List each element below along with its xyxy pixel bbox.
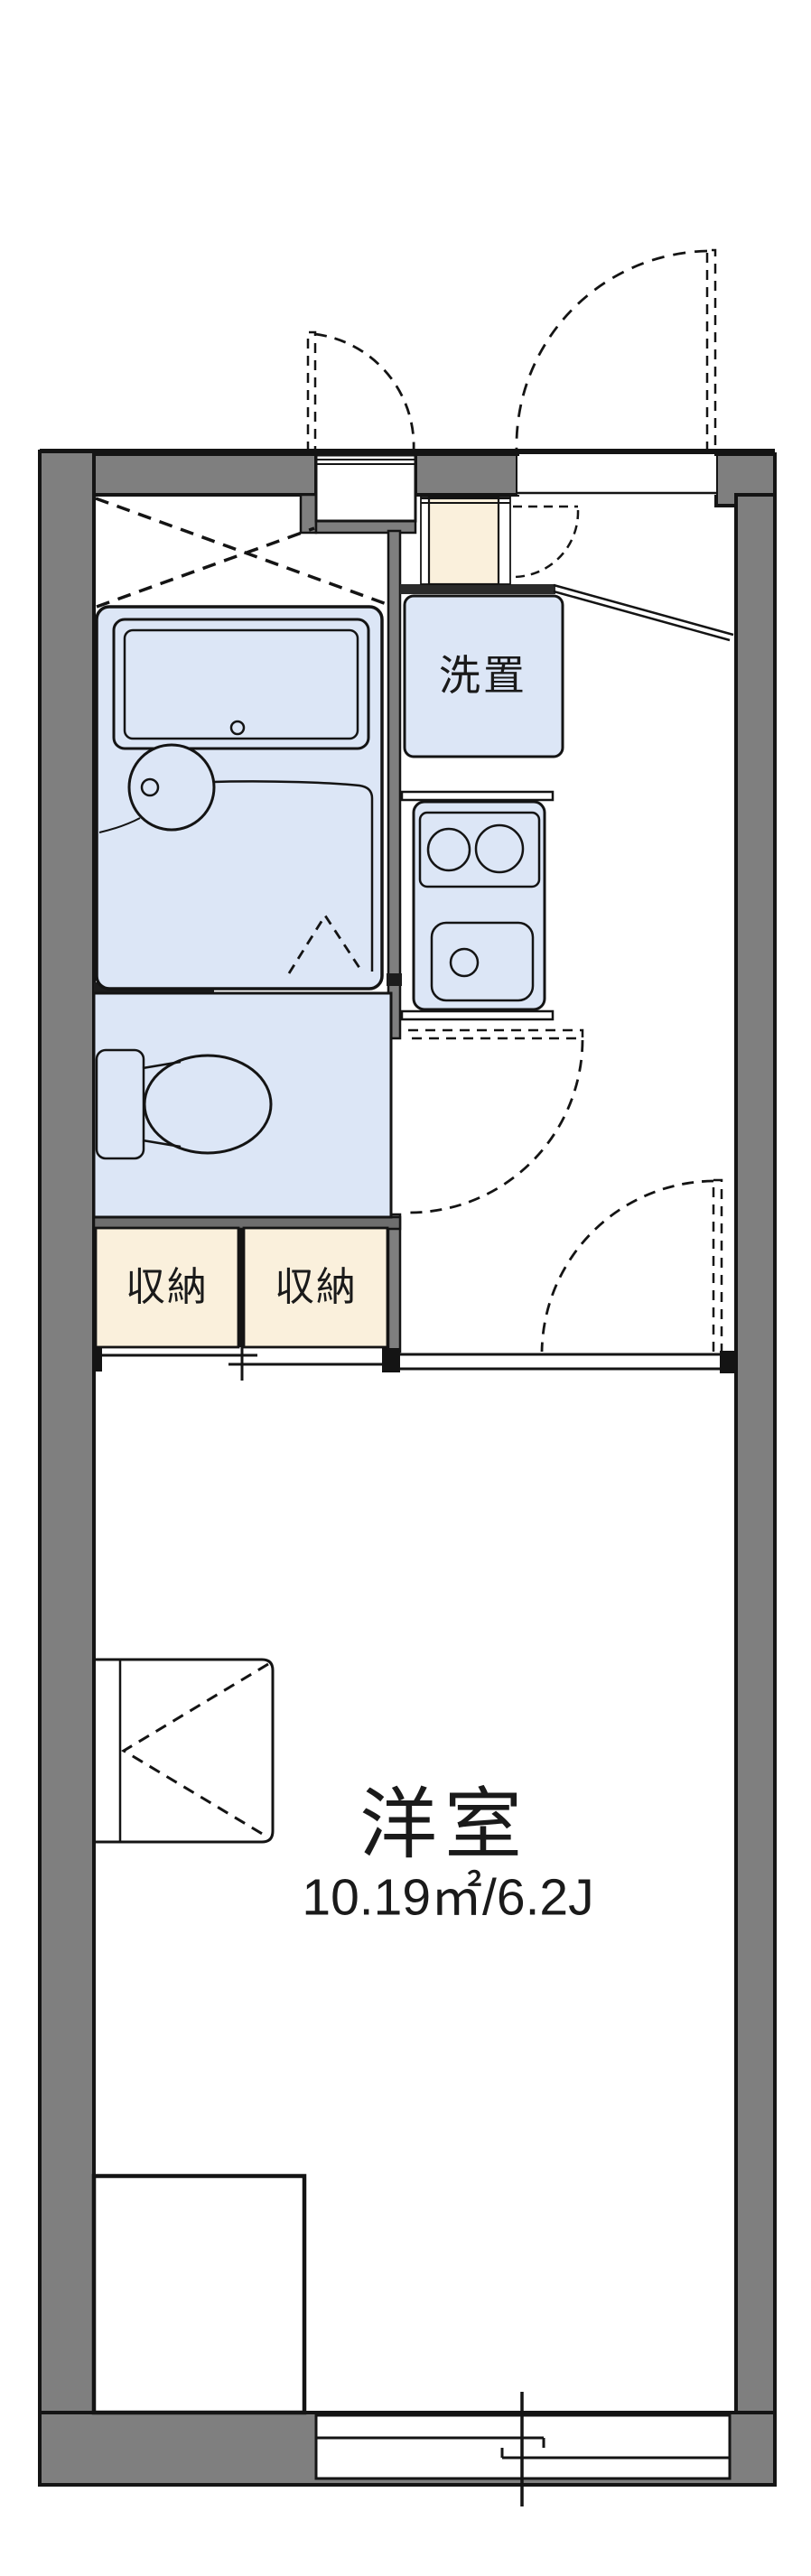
kitchen bbox=[402, 792, 553, 1019]
service-door-leaf bbox=[308, 332, 315, 451]
genkan-side-strip-right bbox=[499, 497, 510, 584]
storage-left-label: 収納 bbox=[126, 1268, 209, 1307]
genkan-side-strip-left bbox=[421, 497, 429, 584]
floor-plan: 洗置 収納 収納 洋室 10.19㎡/6.2J bbox=[0, 0, 811, 2576]
wall-toilet-east bbox=[388, 1214, 400, 1352]
bathroom bbox=[97, 607, 382, 989]
wall-laundry-top-bar bbox=[400, 584, 555, 594]
floor-cabinet bbox=[94, 2176, 304, 2413]
kitchen-unit bbox=[414, 802, 545, 1009]
toilet-bowl-icon bbox=[144, 1056, 271, 1153]
doorway-frame-right bbox=[720, 1351, 738, 1373]
toilet-room bbox=[94, 993, 391, 1217]
main-room-door-leaf bbox=[713, 1180, 722, 1352]
genkan-closet-arc bbox=[513, 510, 578, 577]
wall-kitchen-joint bbox=[387, 973, 402, 986]
toilet-door-arc bbox=[408, 1040, 583, 1213]
entry-door-arc bbox=[517, 251, 707, 451]
entrance-floor-edge-2 bbox=[554, 591, 730, 640]
genkan-step bbox=[429, 497, 499, 584]
main-room-area-label: 10.19㎡/6.2J bbox=[302, 1873, 593, 1924]
floor-plan-drawing bbox=[0, 0, 811, 2576]
wall-bath-east bbox=[388, 531, 400, 1038]
kitchen-counter-bottom-edge bbox=[402, 1011, 553, 1019]
entry-door-leaf bbox=[707, 250, 715, 451]
bottom-window bbox=[316, 2392, 730, 2506]
toilet-door-leaf bbox=[408, 1030, 583, 1038]
main-room-label: 洋室 bbox=[359, 1786, 529, 1864]
folding-desk-chevron bbox=[124, 1664, 268, 1837]
entry-door-opening bbox=[517, 456, 716, 495]
sliding-door-bracket-left bbox=[94, 1348, 102, 1372]
main-room-furniture bbox=[94, 1660, 304, 2413]
storage-right-label: 収納 bbox=[275, 1268, 358, 1307]
utility-x-line-2 bbox=[97, 528, 314, 607]
main-room-doorway bbox=[400, 1351, 738, 1373]
storage-divider bbox=[238, 1228, 245, 1347]
wall-right bbox=[736, 495, 775, 2485]
service-door-arc bbox=[315, 334, 414, 451]
entrance-floor-edge-1 bbox=[554, 585, 733, 635]
wall-top-pier bbox=[415, 454, 517, 495]
laundry-label: 洗置 bbox=[439, 655, 527, 696]
wall-left bbox=[40, 451, 94, 2485]
storage-sliding-door bbox=[94, 1347, 400, 1381]
sliding-door-bracket-right bbox=[382, 1348, 400, 1372]
main-room-door-arc bbox=[542, 1181, 713, 1352]
kitchen-counter-top-edge bbox=[402, 792, 553, 800]
